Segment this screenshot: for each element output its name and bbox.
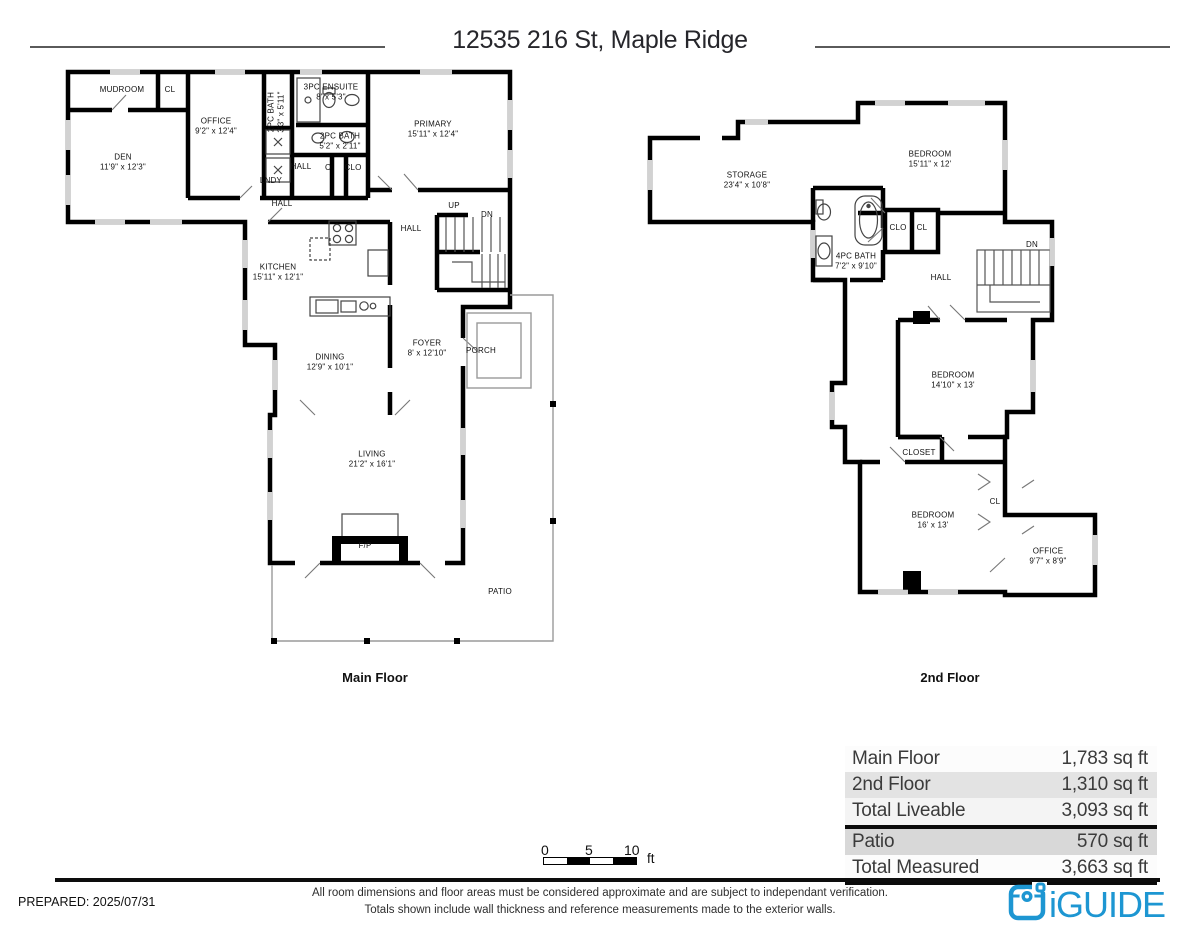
disclaimer-line-1: All room dimensions and floor areas must… [300,885,900,902]
area-row-total-liveable: Total Liveable3,093 sq ft [845,798,1157,828]
area-row-patio: Patio570 sq ft [845,829,1157,855]
area-table: Main Floor1,783 sq ft2nd Floor1,310 sq f… [845,746,1157,885]
second-floor-plan [650,103,1095,595]
iguide-logo-icon [1007,882,1047,927]
iguide-logo: iGUIDE [1007,882,1165,927]
footer-rule [55,878,1160,882]
disclaimer-line-2: Totals shown include wall thickness and … [300,902,900,919]
main-floor-plan [68,72,510,563]
scale-unit: ft [647,851,655,866]
area-row-2nd-floor: 2nd Floor1,310 sq ft [845,772,1157,798]
prepared-date: PREPARED: 2025/07/31 [18,895,155,909]
scale-bar [543,857,637,865]
area-row-main-floor: Main Floor1,783 sq ft [845,746,1157,772]
scale-tick-5: 5 [585,842,593,858]
scale-tick-0: 0 [541,842,549,858]
scale-tick-10: 10 [624,842,640,858]
area-row-total-measured: Total Measured3,663 sq ft [845,855,1157,881]
main-floor-caption: Main Floor [342,670,408,685]
second-floor-caption: 2nd Floor [920,670,979,685]
iguide-logo-text: iGUIDE [1049,885,1165,925]
disclaimer: All room dimensions and floor areas must… [300,885,900,918]
